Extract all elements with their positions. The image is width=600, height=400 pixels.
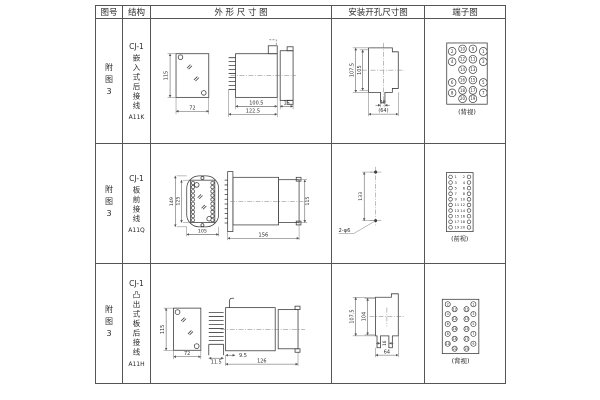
dim-front-height: 115	[164, 71, 170, 80]
row2-terminal-svg: 1357911131517192468101214161820 (前视)	[425, 144, 505, 263]
dim-side-height: 115	[305, 197, 311, 206]
terminal-circle	[449, 198, 453, 202]
terminal-number: 17	[455, 220, 460, 224]
row2-mounting-drawing: 133 2-φ6	[332, 144, 425, 264]
header-terminal-diagram: 端子图	[425, 6, 506, 19]
terminal-number: 6	[447, 322, 449, 326]
dim-plate-height: 149	[169, 197, 175, 206]
row2-structure-text: 板前接线	[131, 186, 142, 224]
terminal-number: 14	[453, 317, 457, 321]
spec-sheet-page: 图号 结构 外 形 尺 寸 图 安装开孔尺寸图 端子图 附图3 CJ-1 嵌入式…	[0, 0, 600, 400]
terminal-circle	[449, 226, 453, 230]
terminal-circle	[467, 175, 471, 179]
header-mounting-holes: 安装开孔尺寸图	[332, 6, 425, 19]
row2-structure: CJ-1 板前接线 A11Q	[123, 144, 151, 264]
terminal-number: 3	[472, 312, 474, 316]
terminal-circle	[191, 190, 194, 193]
terminal-circle	[191, 181, 194, 184]
terminal-circle	[191, 214, 194, 217]
row3-outline-svg: 115 72 9.5 11.5 126	[151, 264, 331, 383]
terminal-number: 10	[446, 342, 450, 346]
terminal-circle	[449, 214, 453, 218]
header-figure-no: 图号	[96, 6, 123, 19]
hole-note: 2-φ6	[338, 228, 350, 234]
terminal-number: 17	[470, 88, 476, 93]
row1-code: A11K	[129, 114, 145, 121]
terminal-number: 13	[455, 209, 460, 213]
dim-slot-width: 16	[382, 340, 387, 346]
row3-figure-no: 附图3	[96, 264, 123, 384]
row3-model: CJ-1	[129, 279, 144, 288]
terminal-grid-back-view: 2468101214161820111315171913579	[445, 302, 476, 352]
terminal-circle	[449, 186, 453, 190]
terminal-number: 11	[455, 203, 460, 207]
terminal-circle	[467, 203, 471, 207]
row3-structure: CJ-1 凸出式板后接线 A11H	[123, 264, 151, 384]
row1-structure-text: 嵌入式后接线	[131, 54, 142, 111]
header-structure: 结构	[123, 6, 151, 19]
row3-terminal-svg: 2468101214161820111315171913579 (背视)	[425, 264, 505, 383]
terminal-circle	[467, 192, 471, 196]
terminal-circle	[191, 210, 194, 213]
terminal-number: 11	[470, 57, 476, 62]
terminal-number: 12	[460, 203, 465, 207]
terminal-circle	[449, 209, 453, 213]
terminal-circle	[211, 206, 214, 209]
dim-front-width: 72	[189, 105, 195, 111]
header-outline-dims: 外 形 尺 寸 图	[151, 6, 332, 19]
terminal-number: 15	[464, 327, 468, 331]
row2-terminal-drawing: 1357911131517192468101214161820 (前视)	[425, 144, 506, 264]
terminal-number: 17	[464, 337, 468, 341]
terminal-number: 19	[470, 96, 476, 101]
row2-outline-svg: 149 125 105 156 115	[151, 144, 331, 263]
terminal-circle	[191, 206, 194, 209]
row3-mounting-drawing: 107.5 104 16 64	[332, 264, 425, 384]
dim-plate-width: 105	[198, 229, 207, 235]
dim-side-length: 126	[257, 358, 266, 364]
dim-hole-spacing: 133	[358, 192, 364, 201]
dim-pin-depth: 11.5	[211, 360, 222, 366]
terminal-circle	[467, 214, 471, 218]
terminal-number: 8	[447, 332, 449, 336]
terminal-number: 14	[460, 67, 466, 72]
terminal-number: 8	[463, 192, 466, 196]
terminal-number: 16	[460, 214, 465, 218]
terminal-number: 19	[464, 347, 468, 351]
terminal-number: 2	[463, 175, 465, 179]
terminal-number: 10	[460, 46, 466, 51]
terminal-grid-front-view: 1357911131517192468101214161820	[449, 175, 471, 230]
terminal-number: 20	[460, 96, 466, 101]
terminal-circle	[191, 194, 194, 197]
row3-terminal-drawing: 2468101214161820111315171913579 (背视)	[425, 264, 506, 384]
terminal-number: 9	[472, 342, 474, 346]
row1-structure: CJ-1 嵌入式后接线 A11K	[123, 19, 151, 144]
terminal-number: 16	[453, 327, 457, 331]
row3-mounting-svg: 107.5 104 16 64	[332, 264, 424, 383]
terminal-number: 6	[463, 186, 466, 190]
row1-terminal-drawing: 2109141211314136161558181772019 (背视)	[425, 19, 506, 144]
row1-figure-no: 附图3	[96, 19, 123, 144]
terminal-circle	[449, 203, 453, 207]
terminal-number: 12	[460, 57, 466, 62]
terminal-circle	[211, 186, 214, 189]
row3-outline-drawing: 115 72 9.5 11.5 126	[151, 264, 332, 384]
row2-mounting-svg: 133 2-φ6	[332, 144, 424, 263]
row3-code: A11H	[128, 361, 144, 368]
terminal-circle	[467, 220, 471, 224]
terminal-circle	[211, 202, 214, 205]
terminal-circle	[449, 192, 453, 196]
view-label: (背视)	[458, 107, 476, 116]
row1-mounting-drawing: 107.5 105 16 (64)	[332, 19, 425, 144]
terminal-number: 18	[460, 88, 466, 93]
terminal-number: 4	[447, 312, 449, 316]
row1-mounting-svg: 107.5 105 16 (64)	[332, 19, 424, 143]
terminal-circle	[211, 190, 214, 193]
terminal-number: 13	[470, 67, 476, 72]
terminal-number: 5	[455, 186, 457, 190]
row1-model: CJ-1	[129, 42, 144, 51]
terminal-circle	[191, 219, 194, 222]
terminal-circle	[191, 186, 194, 189]
front-terminal-strip	[191, 181, 214, 221]
dim-front-width: 72	[184, 351, 190, 357]
terminal-number: 4	[463, 181, 466, 185]
row1-terminal-svg: 2109141211314136161558181772019 (背视)	[425, 19, 505, 143]
terminal-circle	[211, 194, 214, 197]
terminal-number: 20	[453, 347, 457, 351]
terminal-grid-back-view: 2109141211314136161558181772019	[448, 45, 487, 103]
terminal-number: 19	[455, 226, 460, 230]
terminal-number: 7	[472, 332, 474, 336]
terminal-number: 12	[453, 307, 457, 311]
view-label: (前视)	[451, 235, 468, 243]
dim-slot-width: 16	[380, 99, 386, 105]
terminal-number: 10	[460, 198, 465, 202]
dim-side-flange: 15	[283, 100, 289, 106]
dim-side-total: 122.5	[246, 109, 260, 115]
terminal-circle	[211, 219, 214, 222]
dim-outer-height: 107.5	[350, 310, 356, 324]
view-label: (背视)	[452, 356, 470, 365]
row2-code: A11Q	[128, 227, 144, 234]
terminal-number: 13	[464, 317, 468, 321]
terminal-number: 15	[455, 214, 460, 218]
row1-outline-svg: 115 72 100.5 122.5 15	[151, 19, 331, 143]
terminal-number: 1	[472, 302, 474, 306]
terminal-number: 9	[455, 198, 458, 202]
terminal-circle	[449, 175, 453, 179]
terminal-number: 18	[460, 220, 465, 224]
spec-table: 图号 结构 外 形 尺 寸 图 安装开孔尺寸图 端子图 附图3 CJ-1 嵌入式…	[95, 5, 506, 384]
terminal-number: 5	[472, 322, 474, 326]
terminal-circle	[211, 198, 214, 201]
terminal-circle	[449, 181, 453, 185]
terminal-circle	[191, 198, 194, 201]
dim-opening-width: (64)	[378, 108, 388, 114]
terminal-circle	[191, 202, 194, 205]
terminal-circle	[449, 220, 453, 224]
terminal-number: 16	[460, 77, 466, 82]
dim-inner-height: 104	[362, 312, 368, 321]
terminal-circle	[467, 181, 471, 185]
terminal-circle	[467, 226, 471, 230]
terminal-number: 14	[460, 209, 465, 213]
dim-outer-height: 107.5	[350, 63, 356, 77]
row2-figure-no: 附图3	[96, 144, 123, 264]
dim-window-height: 125	[176, 197, 182, 206]
row1-outline-drawing: 115 72 100.5 122.5 15	[151, 19, 332, 144]
terminal-circle	[211, 181, 214, 184]
terminal-circle	[467, 186, 471, 190]
terminal-number: 11	[464, 307, 468, 311]
terminal-number: 15	[470, 77, 476, 82]
dim-front-height: 115	[160, 325, 166, 334]
terminal-number: 20	[460, 226, 465, 230]
terminal-circle	[467, 198, 471, 202]
row3-structure-text: 凸出式板后接线	[131, 291, 142, 358]
dim-side-length: 156	[258, 232, 268, 238]
terminal-number: 7	[455, 192, 457, 196]
terminal-circle	[467, 209, 471, 213]
terminal-number: 18	[453, 337, 457, 341]
terminal-circle	[211, 210, 214, 213]
dim-pin-offset: 9.5	[239, 353, 247, 359]
row2-model: CJ-1	[129, 174, 144, 183]
dim-opening-width: 64	[384, 349, 390, 355]
dim-inner-height: 105	[357, 65, 363, 74]
row2-outline-drawing: 149 125 105 156 115	[151, 144, 332, 264]
terminal-number: 1	[455, 175, 457, 179]
terminal-number: 2	[447, 302, 449, 306]
dim-side-depth: 100.5	[249, 100, 263, 106]
terminal-circle	[211, 214, 214, 217]
terminal-number: 3	[455, 181, 457, 185]
